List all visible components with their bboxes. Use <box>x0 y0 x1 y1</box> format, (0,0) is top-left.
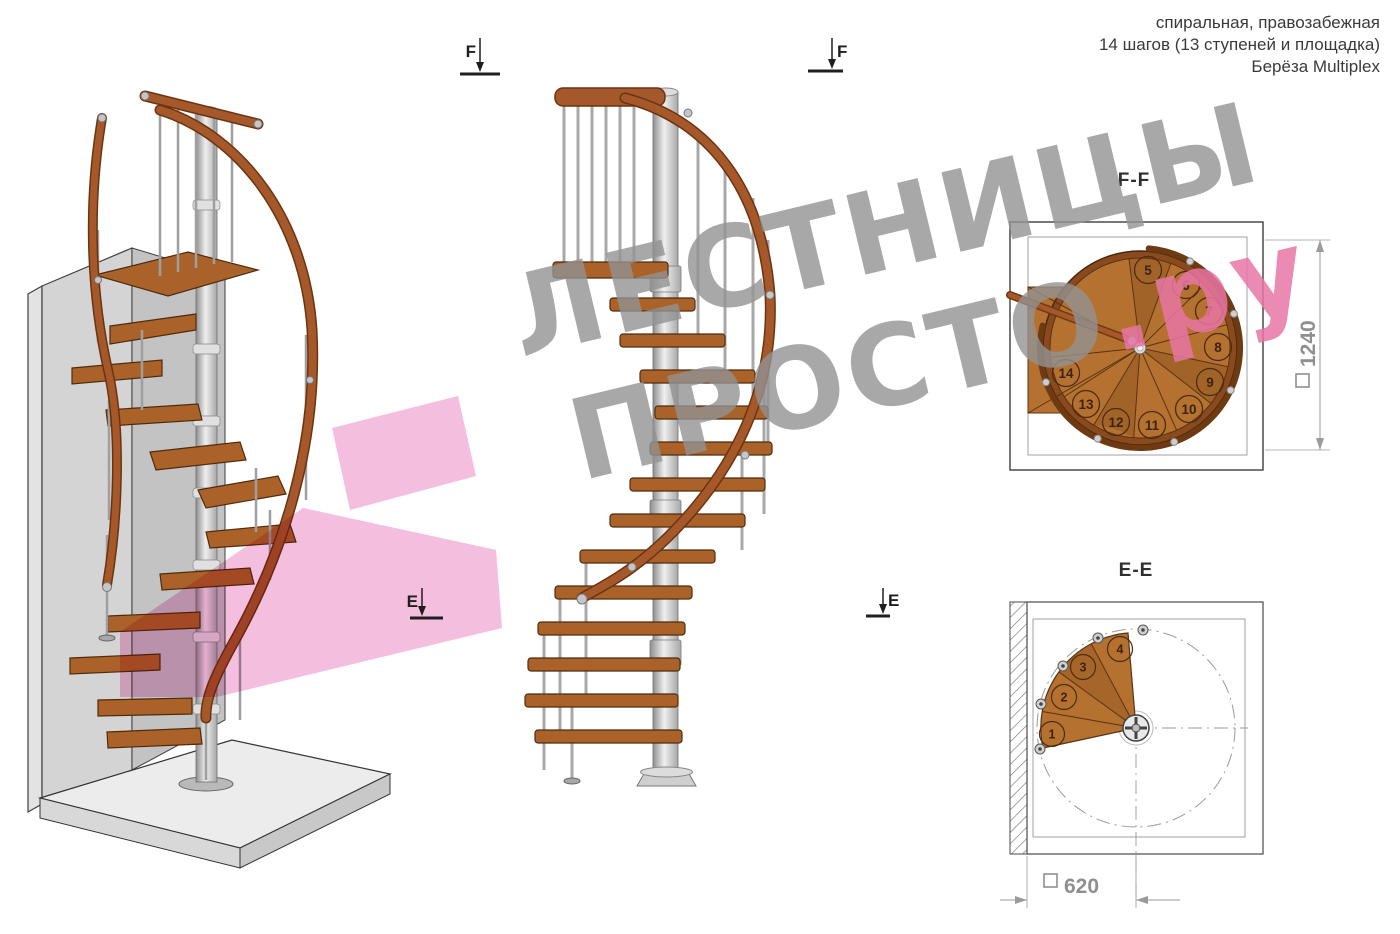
square-symbol <box>1044 874 1057 887</box>
section-letter-e: E <box>888 591 899 610</box>
svg-text:9: 9 <box>1206 375 1214 390</box>
svg-text:2: 2 <box>1061 691 1068 705</box>
svg-text:1: 1 <box>1049 728 1056 742</box>
svg-text:5: 5 <box>1144 263 1152 278</box>
svg-text:14: 14 <box>1058 366 1074 381</box>
svg-text:620: 620 <box>1064 875 1099 898</box>
svg-text:13: 13 <box>1078 397 1094 412</box>
svg-text:8: 8 <box>1214 340 1222 355</box>
treads-elevation <box>525 262 772 743</box>
svg-text:4: 4 <box>1117 643 1124 657</box>
section-letter-f: F <box>466 42 476 61</box>
baluster-foot <box>564 778 580 784</box>
ff-title: F-F <box>1118 170 1151 191</box>
ee-dimension-label: 620 <box>1044 874 1099 898</box>
material-line: Берёза Multiplex <box>1099 56 1380 78</box>
drawing-sheet: спиральная, правозабежная 14 шагов (13 с… <box>0 0 1400 934</box>
svg-text:12: 12 <box>1108 415 1123 430</box>
section-letter-e: E <box>407 592 418 611</box>
section-letter-f: F <box>837 42 847 61</box>
ff-plan-view: F-F <box>1000 160 1345 490</box>
svg-text:6: 6 <box>1182 278 1190 293</box>
center-column-elevation <box>637 88 696 786</box>
section-marker-e-right: E <box>860 584 920 634</box>
ee-plan-view: E-E <box>1000 548 1345 934</box>
ff-dimension-label: 1240 <box>1296 320 1320 387</box>
stair-type-line: спиральная, правозабежная <box>1099 12 1380 34</box>
svg-text:1240: 1240 <box>1297 320 1320 367</box>
steps-count-line: 14 шагов (13 ступеней и площадка) <box>1099 34 1380 56</box>
isometric-view <box>10 80 450 870</box>
title-annotation: спиральная, правозабежная 14 шагов (13 с… <box>1099 12 1380 78</box>
section-marker-e-left: E <box>396 582 456 632</box>
section-marker-f-right: F <box>800 30 860 85</box>
section-marker-f-left: F <box>450 30 510 85</box>
svg-text:3: 3 <box>1080 661 1087 675</box>
ee-wall-hatch <box>1010 602 1027 854</box>
ee-title: E-E <box>1119 560 1154 581</box>
baluster-foot <box>99 635 115 641</box>
svg-text:7: 7 <box>1205 304 1213 319</box>
elevation-view <box>520 80 820 795</box>
svg-text:10: 10 <box>1181 402 1196 417</box>
svg-text:11: 11 <box>1145 418 1160 433</box>
square-symbol <box>1296 374 1309 387</box>
